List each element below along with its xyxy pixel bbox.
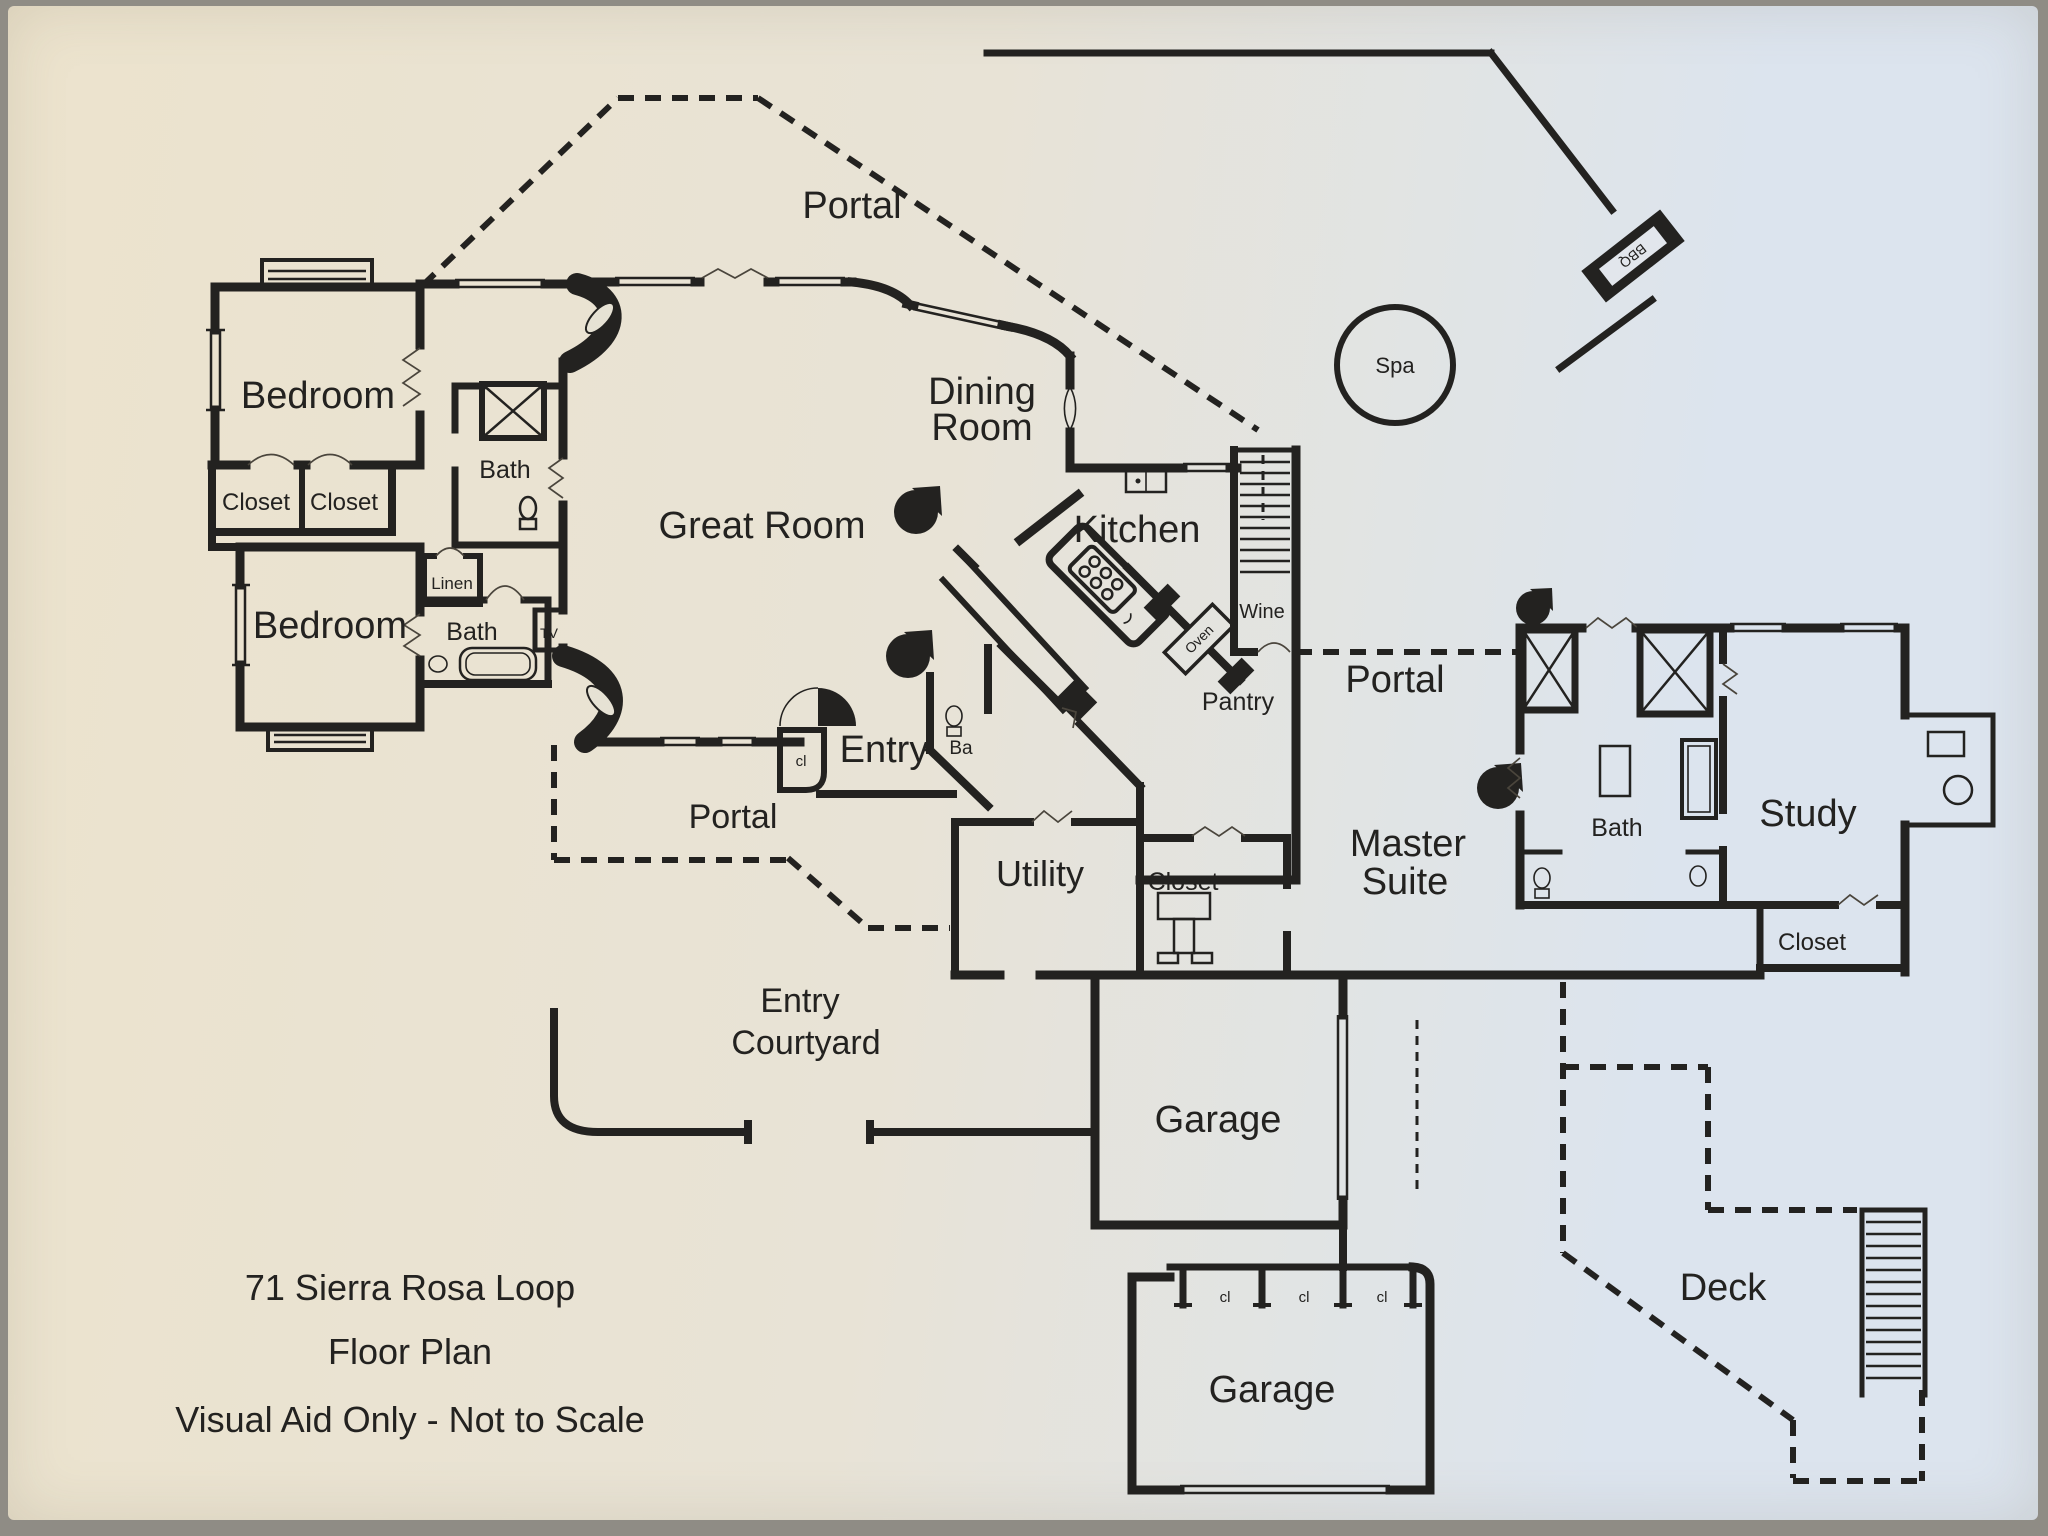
- garage-upper-label: Garage: [1155, 1099, 1282, 1141]
- fireplace-icon: [894, 486, 942, 534]
- portal-right-label: Portal: [1345, 659, 1444, 701]
- great-room-label: Great Room: [659, 505, 866, 547]
- toilet-master-icon: [1690, 866, 1706, 886]
- toilet-powder-icon: [946, 706, 962, 726]
- toilet-upper-icon: [520, 497, 536, 519]
- dining-room: Dining Room: [907, 302, 1076, 468]
- fireplace-icon: [886, 630, 934, 678]
- title-block: 71 Sierra Rosa Loop Floor Plan Visual Ai…: [175, 1267, 645, 1440]
- courtyard-dashed-line: [554, 745, 950, 928]
- study-label: Study: [1759, 793, 1856, 835]
- table-icon: [1944, 776, 1972, 804]
- portal-left-label: Portal: [689, 798, 778, 836]
- closet-upper-left-label: Closet: [222, 489, 290, 516]
- wing-baths: Bath Linen Bath TV: [420, 280, 620, 742]
- portal-top-label: Portal: [802, 185, 901, 227]
- bedroom-upper-door-mark: [403, 348, 420, 406]
- title-line1: 71 Sierra Rosa Loop: [245, 1267, 575, 1308]
- garage-lower-label: Garage: [1209, 1369, 1336, 1411]
- bbq-icon: BBQ: [1581, 209, 1684, 302]
- floor-plan-drawing: Bedroom Closet Closet Bedroom Bath: [0, 0, 2048, 1536]
- bedroom-lower-label: Bedroom: [253, 605, 407, 647]
- portal-top: Portal: [423, 98, 1258, 430]
- study: Study Closet: [1723, 628, 1993, 972]
- dining-room-label-line2: Room: [931, 407, 1032, 449]
- master-closet: Closet: [1140, 827, 1287, 975]
- toilet-lower-icon: [429, 656, 447, 672]
- garage-cl2-label: cl: [1299, 1289, 1310, 1306]
- bedroom-upper-label: Bedroom: [241, 375, 395, 417]
- portal-top-dashed-line: [423, 98, 1258, 430]
- deck-dashed-outline: [1563, 982, 1922, 1481]
- vanity-icon: [1600, 746, 1630, 796]
- shower-master-icon: [1682, 740, 1716, 818]
- pantry-label: Pantry: [1202, 688, 1275, 716]
- master-suite-label-line1: Master: [1350, 823, 1466, 865]
- fireplace-icon: [1477, 763, 1523, 809]
- garage-cl3-label: cl: [1377, 1289, 1388, 1306]
- front-door-icon: [818, 688, 856, 726]
- deck-staircase-icon: [1866, 1222, 1921, 1378]
- garage-door-lower: [1180, 1486, 1390, 1493]
- staircase-icon: [1240, 462, 1290, 572]
- garage-door-upper: [1338, 1015, 1347, 1200]
- entry-cl-label: cl: [796, 753, 807, 770]
- title-line3: Visual Aid Only - Not to Scale: [175, 1399, 645, 1440]
- closet-upper-right-label: Closet: [310, 489, 378, 516]
- study-closet-label: Closet: [1778, 929, 1846, 956]
- wine-label: Wine: [1239, 601, 1285, 623]
- garage-cl1-label: cl: [1220, 1289, 1231, 1306]
- deck-label: Deck: [1680, 1267, 1768, 1309]
- great-room: Great Room: [577, 269, 942, 745]
- spa-label: Spa: [1375, 353, 1415, 378]
- courtyard-label-line1: Entry: [760, 982, 839, 1020]
- entry-label: Entry: [840, 729, 929, 771]
- patio: BBQ Spa: [987, 53, 1685, 423]
- title-line2: Floor Plan: [328, 1331, 492, 1372]
- bath-upper-label: Bath: [479, 456, 530, 484]
- master-bath-label: Bath: [1591, 814, 1642, 842]
- deck: Deck: [1563, 982, 1925, 1481]
- closet-island-icon: [1158, 893, 1210, 919]
- courtyard-label-line2: Courtyard: [731, 1024, 880, 1062]
- garages: Garage cl cl cl Garage: [1095, 975, 1430, 1493]
- utility-label: Utility: [996, 853, 1084, 894]
- entry-courtyard: Portal Entry Courtyard: [554, 745, 1095, 1140]
- ba-label: Ba: [949, 738, 973, 759]
- tv-label: TV: [540, 625, 559, 641]
- master-closet-label: Closet: [1148, 868, 1219, 896]
- bath-lower-label: Bath: [446, 618, 497, 646]
- linen-label: Linen: [431, 574, 473, 593]
- master-bath: Bath: [1508, 618, 1905, 905]
- bedroom-wing: Bedroom Closet Closet Bedroom: [206, 260, 420, 750]
- master-suite-label-line2: Suite: [1362, 861, 1449, 903]
- master-suite: Portal Master Suite: [1296, 588, 1553, 903]
- toilet-master-icon: [1534, 868, 1550, 888]
- outdoor-fireplace-icon: [1516, 588, 1553, 625]
